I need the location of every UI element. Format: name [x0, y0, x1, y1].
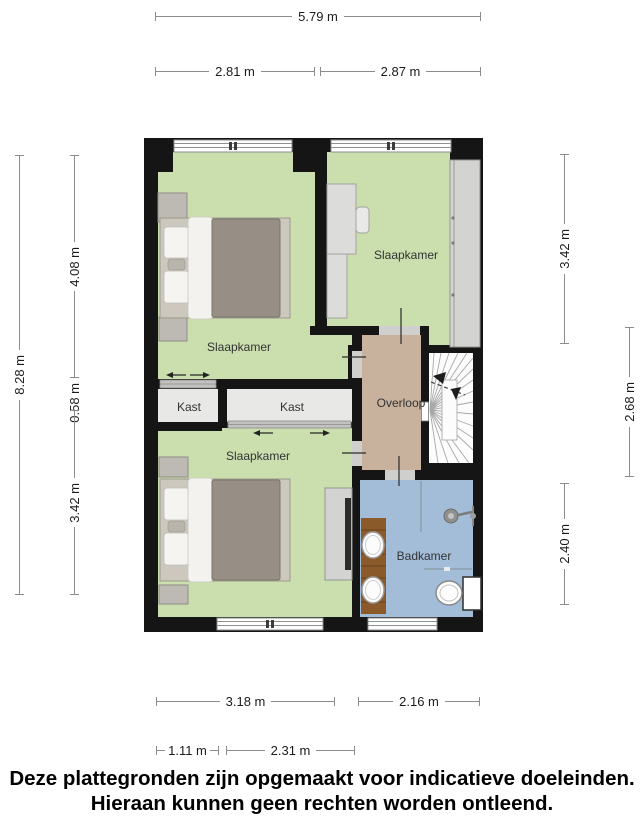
- dim-line: [74, 411, 75, 478]
- dim-line: [629, 328, 630, 377]
- nightstand: [159, 457, 188, 477]
- room-label-landing: Overloop: [377, 396, 426, 410]
- dim-line: [344, 16, 480, 17]
- dim-label: 2.40 m: [557, 519, 572, 569]
- dimension-bottom-right: 2.16 m: [358, 693, 480, 709]
- dim-line: [629, 427, 630, 476]
- dim-tick: [334, 697, 335, 706]
- dim-tick: [560, 604, 569, 605]
- dim-tick: [218, 746, 219, 755]
- door-bedroom-top-left: [352, 351, 362, 378]
- window-top-right-mark2: [392, 142, 395, 150]
- room-label-closet-right: Kast: [280, 400, 305, 414]
- dimension-bottom-sub-right: 2.31 m: [226, 742, 355, 758]
- dimension-right-top: 3.42 m: [556, 154, 572, 344]
- dim-tick: [479, 697, 480, 706]
- disclaimer: Deze plattegronden zijn opgemaakt voor i…: [0, 766, 644, 816]
- window-top-left: [174, 140, 292, 152]
- wall-pillar-top-left: [144, 138, 173, 172]
- pillow: [164, 271, 189, 303]
- dim-line: [321, 71, 375, 72]
- dimension-left-top: 4.08 m: [66, 155, 82, 378]
- dim-line: [156, 16, 292, 17]
- dimension-left-mid: 0.58 m: [66, 378, 82, 410]
- dim-tick: [480, 67, 481, 76]
- window-bottom-bedroom: [217, 618, 323, 630]
- wall-closet-left-bottom: [144, 422, 222, 431]
- wardrobe: [450, 160, 480, 347]
- wall-bedrooms-divider: [315, 152, 327, 335]
- toilet-cistern: [463, 577, 481, 610]
- dim-label: 1.11 m: [165, 743, 210, 758]
- wall-bathroom-left: [352, 480, 360, 617]
- tv-panel: [345, 498, 351, 570]
- dimension-bottom-left: 3.18 m: [156, 693, 335, 709]
- dim-tick: [15, 594, 24, 595]
- dim-label: 2.68 m: [622, 377, 637, 427]
- dim-line: [359, 701, 393, 702]
- dim-line: [210, 750, 218, 751]
- dim-line: [261, 71, 314, 72]
- window-bathroom: [368, 618, 437, 630]
- dim-line: [564, 569, 565, 604]
- dimension-top-right: 2.87 m: [320, 63, 481, 79]
- floor-plan-page: Slaapkamer Slaapkamer Slaapkamer Kast Ka…: [0, 0, 644, 827]
- dim-tick: [70, 594, 79, 595]
- bed-sheet: [188, 217, 213, 319]
- dim-label: 3.42 m: [67, 478, 82, 528]
- floor-plan: Slaapkamer Slaapkamer Slaapkamer Kast Ka…: [140, 125, 490, 640]
- dimension-top-left: 2.81 m: [155, 63, 315, 79]
- window-top-right: [331, 140, 451, 152]
- dimension-left-total: 8.28 m: [11, 155, 27, 595]
- room-label-bedroom-top-left: Slaapkamer: [207, 340, 271, 354]
- room-label-bathroom: Badkamer: [397, 549, 452, 563]
- glass-handle: [444, 567, 450, 571]
- dim-label: 8.28 m: [12, 350, 27, 400]
- dim-line: [19, 400, 20, 594]
- bed-sheet: [188, 478, 213, 582]
- wardrobe-handle: [451, 216, 454, 219]
- wardrobe-handle: [451, 241, 454, 244]
- dim-line: [157, 701, 220, 702]
- dim-label: 4.08 m: [67, 242, 82, 292]
- dim-line: [157, 750, 165, 751]
- wardrobe-handle: [451, 293, 454, 296]
- nightstand: [159, 585, 188, 604]
- pillow: [164, 488, 189, 520]
- dim-line: [74, 291, 75, 377]
- bed-duvet: [212, 219, 280, 317]
- window-bottom-bedroom-mark: [266, 620, 269, 628]
- nightstand: [159, 317, 187, 341]
- wall-stairs-bottom: [421, 463, 483, 480]
- dim-tick: [625, 476, 634, 477]
- door-bedroom-top-right: [379, 326, 420, 335]
- dim-tick: [480, 12, 481, 21]
- pillow: [164, 533, 189, 565]
- wall-stairs-left-lower: [421, 421, 429, 463]
- dim-line: [156, 71, 209, 72]
- room-label-closet-left: Kast: [177, 400, 202, 414]
- room-label-bedroom-bottom: Slaapkamer: [226, 449, 290, 463]
- dim-tick: [314, 67, 315, 76]
- room-label-bedroom-top-right: Slaapkamer: [374, 248, 438, 262]
- desk-return: [327, 254, 347, 318]
- shower-head-center: [448, 513, 454, 519]
- window-top-left-mark: [229, 142, 232, 150]
- wall-closet-divider: [218, 389, 227, 422]
- dim-line: [564, 274, 565, 343]
- dim-line: [564, 155, 565, 224]
- shower-mixer-knob: [470, 513, 476, 519]
- pillow-knot: [168, 259, 185, 270]
- dim-line: [74, 527, 75, 594]
- dim-line: [74, 156, 75, 242]
- dim-label: 5.79 m: [292, 9, 344, 24]
- dim-label: 3.18 m: [220, 694, 272, 709]
- dim-tick: [354, 746, 355, 755]
- dim-line: [227, 750, 265, 751]
- disclaimer-line-1: Deze plattegronden zijn opgemaakt voor i…: [0, 766, 644, 791]
- dim-line: [19, 156, 20, 350]
- window-bottom-bedroom-mark2: [271, 620, 274, 628]
- dim-line: [271, 701, 334, 702]
- dim-label: 2.31 m: [265, 743, 317, 758]
- dimension-top-total: 5.79 m: [155, 8, 481, 24]
- dim-label: 3.42 m: [557, 224, 572, 274]
- dim-label: 2.81 m: [209, 64, 261, 79]
- dimension-bottom-sub-left: 1.11 m: [156, 742, 219, 758]
- dim-line: [445, 701, 479, 702]
- dim-line: [564, 484, 565, 519]
- dim-line: [426, 71, 480, 72]
- dim-label: 2.87 m: [375, 64, 427, 79]
- desk-chair: [356, 207, 369, 233]
- disclaimer-line-2: Hieraan kunnen geen rechten worden ontle…: [0, 791, 644, 816]
- dimension-left-bottom: 3.42 m: [66, 410, 82, 595]
- wall-pillar-top-right: [450, 138, 483, 162]
- dim-line: [316, 750, 354, 751]
- pillow-knot: [168, 521, 185, 532]
- dimension-right-mid: 2.68 m: [621, 327, 637, 477]
- window-top-right-mark: [387, 142, 390, 150]
- pillow: [164, 227, 189, 258]
- window-top-left-mark2: [234, 142, 237, 150]
- bed-duvet: [212, 480, 280, 580]
- door-bathroom: [385, 470, 415, 480]
- wall-landing-left-lower: [352, 389, 362, 480]
- desk: [327, 184, 356, 254]
- dimension-right-bottom: 2.40 m: [556, 483, 572, 605]
- dim-label: 2.16 m: [393, 694, 445, 709]
- dim-tick: [560, 343, 569, 344]
